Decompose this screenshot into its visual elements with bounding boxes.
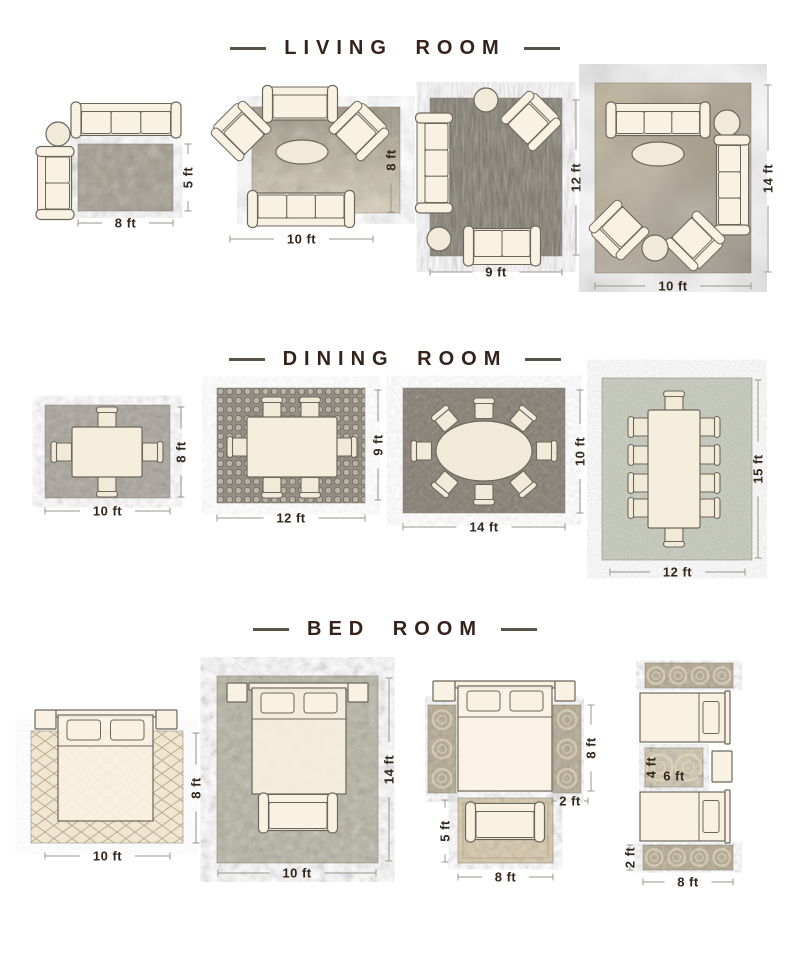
dimension-label: 10 ft bbox=[230, 232, 373, 247]
svg-text:14 ft: 14 ft bbox=[761, 164, 776, 193]
rug bbox=[645, 663, 733, 688]
nightstand bbox=[227, 683, 247, 702]
dimension-label: 12 ft bbox=[610, 565, 745, 580]
dining-table bbox=[72, 427, 142, 477]
rug bbox=[553, 705, 581, 793]
dining-chair bbox=[51, 442, 72, 463]
dining-chair bbox=[700, 473, 721, 494]
round-table bbox=[46, 122, 70, 146]
layout-dining-12x9: 9 ft12 ft bbox=[217, 388, 386, 526]
dimension-label: 12 ft bbox=[569, 100, 584, 255]
sofa bbox=[248, 191, 355, 228]
dining-chair bbox=[97, 477, 118, 498]
sofa bbox=[259, 793, 338, 833]
svg-text:5 ft: 5 ft bbox=[438, 820, 453, 842]
dining-chair bbox=[628, 417, 649, 438]
layout-living-8x5: 5 ft8 ft bbox=[36, 102, 196, 231]
dining-chair bbox=[300, 397, 321, 418]
svg-text:2 ft: 2 ft bbox=[623, 847, 638, 869]
sofa bbox=[71, 102, 181, 138]
svg-text:8 ft: 8 ft bbox=[189, 777, 204, 799]
dining-chair bbox=[97, 407, 118, 428]
rug-size-guide: LIVING ROOM DINING ROOM BED ROOM 5 ft8 f… bbox=[0, 0, 800, 978]
bed bbox=[249, 683, 349, 794]
layout-bed-10x8: 8 ft10 ft bbox=[31, 710, 204, 864]
svg-text:8 ft: 8 ft bbox=[584, 737, 599, 759]
dimension-label: 14 ft bbox=[761, 85, 776, 272]
layout-dining-10x8: 8 ft10 ft bbox=[45, 405, 189, 519]
dimension-label: 14 ft bbox=[382, 678, 397, 861]
dimension-label: 15 ft bbox=[751, 380, 766, 558]
dining-chair bbox=[143, 442, 164, 463]
twin-bed bbox=[640, 691, 730, 744]
svg-text:14 ft: 14 ft bbox=[382, 755, 397, 784]
sofa bbox=[263, 86, 338, 123]
nightstand bbox=[156, 710, 177, 729]
nightstand bbox=[35, 710, 56, 729]
dimension-label: 8 ft bbox=[458, 870, 553, 885]
oval-table bbox=[276, 140, 328, 164]
dimension-label: 9 ft bbox=[371, 390, 386, 500]
dimension-label: 8 ft bbox=[78, 216, 173, 231]
svg-text:12 ft: 12 ft bbox=[276, 511, 305, 526]
twin-bed bbox=[640, 790, 730, 843]
nightstand bbox=[555, 681, 575, 701]
dimension-label: 8 ft bbox=[643, 875, 733, 890]
svg-text:8 ft: 8 ft bbox=[174, 441, 189, 463]
sofa bbox=[36, 147, 74, 220]
dining-chair bbox=[337, 437, 358, 458]
svg-text:10 ft: 10 ft bbox=[287, 232, 316, 247]
svg-text:10 ft: 10 ft bbox=[658, 279, 687, 294]
dining-chair bbox=[411, 441, 432, 462]
dining-chair bbox=[262, 478, 283, 499]
dining-chair bbox=[700, 445, 721, 466]
svg-text:9 ft: 9 ft bbox=[485, 265, 507, 280]
dimension-label: 5 ft bbox=[438, 800, 453, 862]
round-table bbox=[714, 110, 740, 136]
dining-table bbox=[648, 410, 700, 528]
svg-text:2 ft: 2 ft bbox=[559, 794, 581, 809]
dining-chair bbox=[474, 398, 495, 419]
dimension-label: 14 ft bbox=[403, 520, 565, 535]
svg-text:9 ft: 9 ft bbox=[371, 434, 386, 456]
svg-text:10 ft: 10 ft bbox=[573, 437, 588, 466]
svg-text:12 ft: 12 ft bbox=[663, 565, 692, 580]
dimension-label: 8 ft bbox=[189, 733, 204, 843]
layout-dining-14x10: 10 ft14 ft bbox=[403, 388, 588, 535]
layout-living-9x12: 12 ft9 ft bbox=[416, 88, 584, 280]
bed bbox=[55, 710, 156, 821]
layout-dining-12x15: 15 ft12 ft bbox=[602, 378, 766, 580]
rug bbox=[643, 845, 733, 870]
svg-text:12 ft: 12 ft bbox=[569, 163, 584, 192]
dimension-label: 8 ft bbox=[584, 705, 599, 791]
dimension-label: 8 ft bbox=[174, 407, 189, 497]
dimension-label: 2 ft bbox=[552, 794, 588, 809]
svg-text:8 ft: 8 ft bbox=[677, 875, 699, 890]
dimension-label: 10 ft bbox=[45, 504, 170, 519]
bed bbox=[455, 681, 555, 791]
dining-chair bbox=[700, 417, 721, 438]
sofa bbox=[416, 113, 453, 213]
svg-text:6 ft: 6 ft bbox=[663, 769, 685, 784]
sofa bbox=[466, 802, 545, 842]
dimension-label: 10 ft bbox=[45, 849, 170, 864]
scene-canvas: 5 ft8 ft8 ft10 ft12 ft9 ft14 ft10 ft8 ft… bbox=[0, 0, 800, 978]
dining-chair bbox=[700, 498, 721, 519]
dining-chair bbox=[628, 473, 649, 494]
svg-text:4 ft: 4 ft bbox=[644, 757, 659, 779]
svg-text:5 ft: 5 ft bbox=[181, 167, 196, 189]
layout-bed-twins: 4 ft6 ft2 ft8 ft bbox=[623, 663, 734, 890]
dining-chair bbox=[227, 437, 248, 458]
dining-chair bbox=[664, 391, 685, 412]
svg-text:8 ft: 8 ft bbox=[115, 216, 137, 231]
round-table bbox=[474, 88, 498, 112]
svg-text:8 ft: 8 ft bbox=[384, 149, 399, 171]
round-table bbox=[642, 235, 668, 261]
round-table bbox=[427, 227, 451, 251]
dining-chair bbox=[300, 478, 321, 499]
oval-table bbox=[632, 142, 684, 166]
dining-table bbox=[247, 417, 337, 477]
dining-chair bbox=[262, 397, 283, 418]
dining-chair bbox=[664, 527, 685, 548]
dining-chair bbox=[628, 498, 649, 519]
dimension-label: 2 ft bbox=[623, 845, 638, 870]
layout-living-10x8: 8 ft10 ft bbox=[208, 86, 400, 247]
svg-text:10 ft: 10 ft bbox=[93, 849, 122, 864]
dining-chair bbox=[474, 485, 495, 506]
layout-bed-runners: 8 ft2 ft5 ft8 ft bbox=[428, 681, 599, 885]
rug bbox=[428, 705, 456, 793]
dining-chair bbox=[537, 441, 558, 462]
nightstand bbox=[348, 683, 368, 702]
dimension-label: 10 ft bbox=[595, 279, 751, 294]
svg-text:10 ft: 10 ft bbox=[93, 504, 122, 519]
svg-text:8 ft: 8 ft bbox=[495, 870, 517, 885]
sofa bbox=[606, 102, 710, 138]
dimension-label: 10 ft bbox=[218, 866, 376, 881]
nightstand bbox=[433, 681, 455, 701]
dimension-label: 9 ft bbox=[430, 265, 562, 280]
dimension-label: 10 ft bbox=[573, 390, 588, 513]
dining-chair bbox=[628, 445, 649, 466]
sofa bbox=[464, 226, 541, 266]
rug bbox=[78, 144, 173, 211]
oval-table bbox=[436, 421, 532, 481]
layout-living-10x14: 14 ft10 ft bbox=[586, 83, 775, 294]
nightstand bbox=[712, 751, 732, 782]
dimension-label: 5 ft bbox=[181, 144, 196, 211]
svg-text:15 ft: 15 ft bbox=[751, 454, 766, 483]
sofa bbox=[714, 135, 750, 235]
layout-bed-10x14: 14 ft10 ft bbox=[217, 676, 397, 881]
svg-text:14 ft: 14 ft bbox=[469, 520, 498, 535]
svg-text:10 ft: 10 ft bbox=[282, 866, 311, 881]
dimension-label: 12 ft bbox=[217, 511, 365, 526]
